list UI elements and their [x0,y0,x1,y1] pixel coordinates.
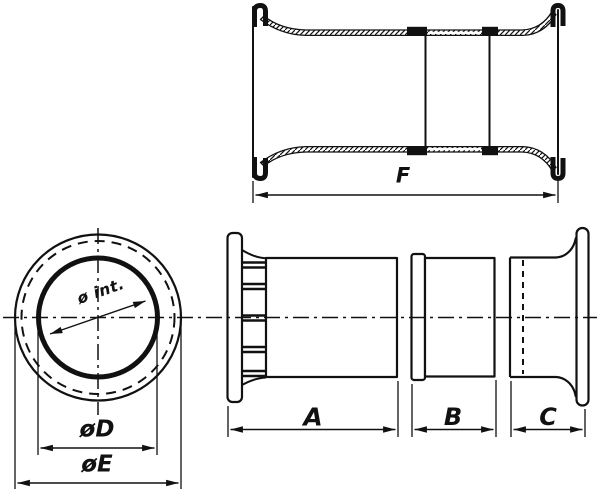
dimension-f-label: F [396,166,410,187]
diameter-d-label: øD [80,419,115,442]
part-a-collar-grooves [243,263,267,377]
part-a [228,233,398,402]
joint-bands [407,27,498,155]
technical-drawing: F ø int. øD øE A B C [0,0,600,494]
exploded-view-linework [228,228,589,437]
assembled-view-linework [253,6,563,179]
sleeve-surface [428,32,481,150]
part-b-dimension-label: B [444,405,462,429]
diameter-e-label: øE [81,454,113,477]
part-c-dimension-label: C [539,405,557,429]
part-a-dimension-label: A [303,405,322,430]
